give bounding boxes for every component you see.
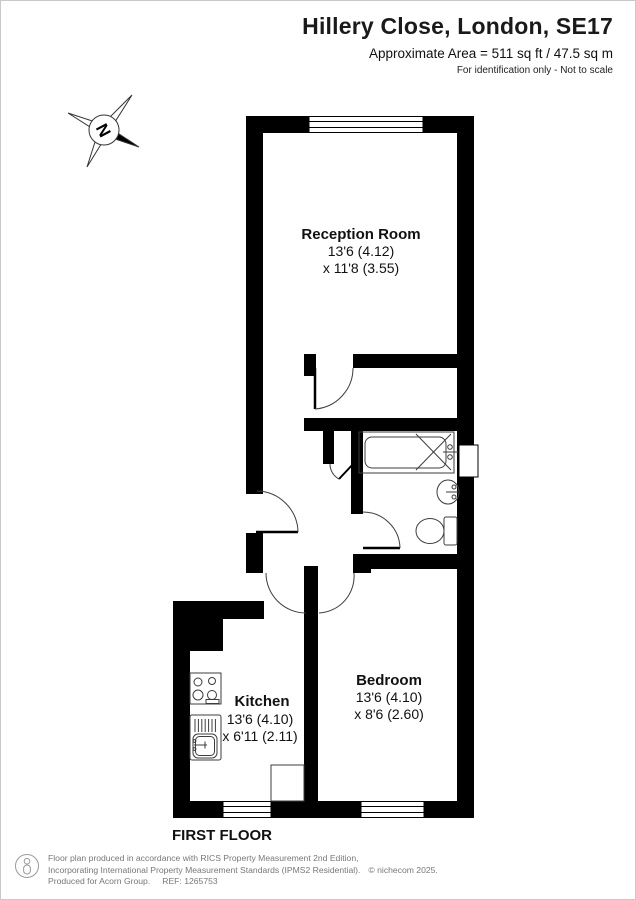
bathtub (359, 432, 458, 473)
window-kitchen (223, 802, 271, 818)
nichecom-person-icon (14, 853, 40, 879)
reception-door (315, 368, 353, 409)
footer-line-3: Produced for Acorn Group.REF: 1265753 (48, 876, 438, 887)
hob (190, 673, 221, 704)
produced-for: Produced for Acorn Group. (48, 876, 150, 886)
kitchen-recess (271, 765, 304, 801)
room-label-bedroom: Bedroom 13'6 (4.10) x 8'6 (2.60) (354, 672, 424, 722)
toilet (416, 517, 457, 545)
footer-line-1: Floor plan produced in accordance with R… (48, 853, 438, 864)
doors (256, 368, 400, 613)
footer: Floor plan produced in accordance with R… (14, 853, 438, 887)
bedroom-dims-2: x 8'6 (2.60) (354, 706, 424, 722)
floor-plan: N (1, 1, 636, 900)
wash-basin (437, 480, 459, 504)
interior-walls (304, 354, 474, 801)
footer-text: Floor plan produced in accordance with R… (48, 853, 438, 887)
reception-door-opening (316, 354, 353, 368)
bedroom-dims-1: 13'6 (4.10) (356, 689, 423, 705)
bedroom-name: Bedroom (356, 672, 422, 689)
reception-name: Reception Room (301, 226, 420, 243)
exterior-walls (173, 116, 474, 818)
kitchen-name: Kitchen (234, 693, 289, 710)
kitchen-dims-2: x 6'11 (2.11) (222, 728, 297, 744)
kitchen-sink (190, 715, 221, 760)
window-reception (309, 117, 423, 133)
reception-dims-2: x 11'8 (3.55) (323, 260, 399, 276)
north-compass-icon: N (68, 95, 139, 167)
room-label-reception: Reception Room 13'6 (4.12) x 11'8 (3.55) (301, 226, 420, 276)
copyright: © nichecom 2025. (368, 865, 437, 875)
floorplan-sheet: Hillery Close, London, SE17 Approximate … (0, 0, 636, 900)
entrance-door (256, 491, 298, 532)
bathroom-door (363, 512, 400, 548)
kitchen-dims-1: 13'6 (4.10) (227, 711, 294, 727)
footer-line-2: Incorporating International Property Mea… (48, 865, 438, 876)
reception-dims-1: 13'6 (4.12) (328, 243, 395, 259)
window-bedroom (361, 802, 424, 818)
footer-standards: Incorporating International Property Mea… (48, 865, 360, 875)
room-label-kitchen: Kitchen 13'6 (4.10) x 6'11 (2.11) (222, 693, 297, 744)
bedroom-door (319, 573, 354, 613)
bathroom-recess (459, 445, 478, 477)
floor-label: FIRST FLOOR (172, 827, 272, 844)
reference-number: REF: 1265753 (162, 876, 217, 886)
kitchen-door (266, 573, 306, 613)
